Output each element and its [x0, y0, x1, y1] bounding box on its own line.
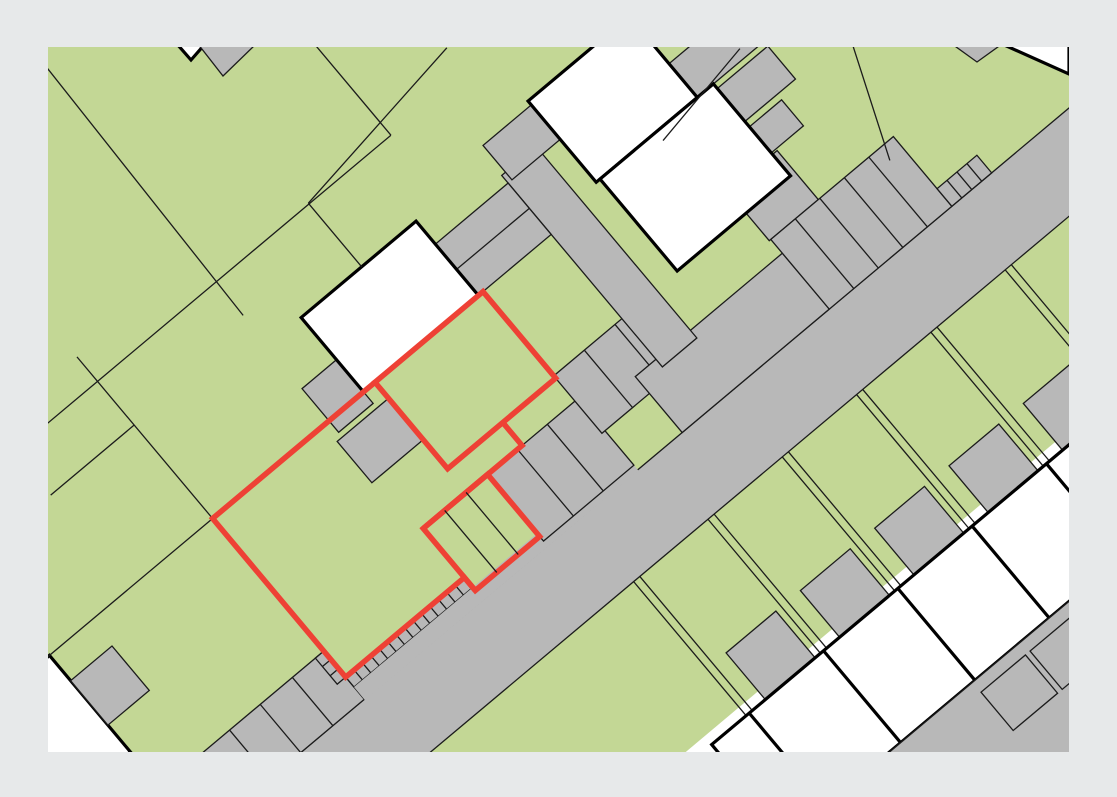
- rotated-map-layer: [0, 0, 1117, 797]
- map-viewer: [0, 0, 1117, 797]
- map-canvas[interactable]: [0, 0, 1117, 797]
